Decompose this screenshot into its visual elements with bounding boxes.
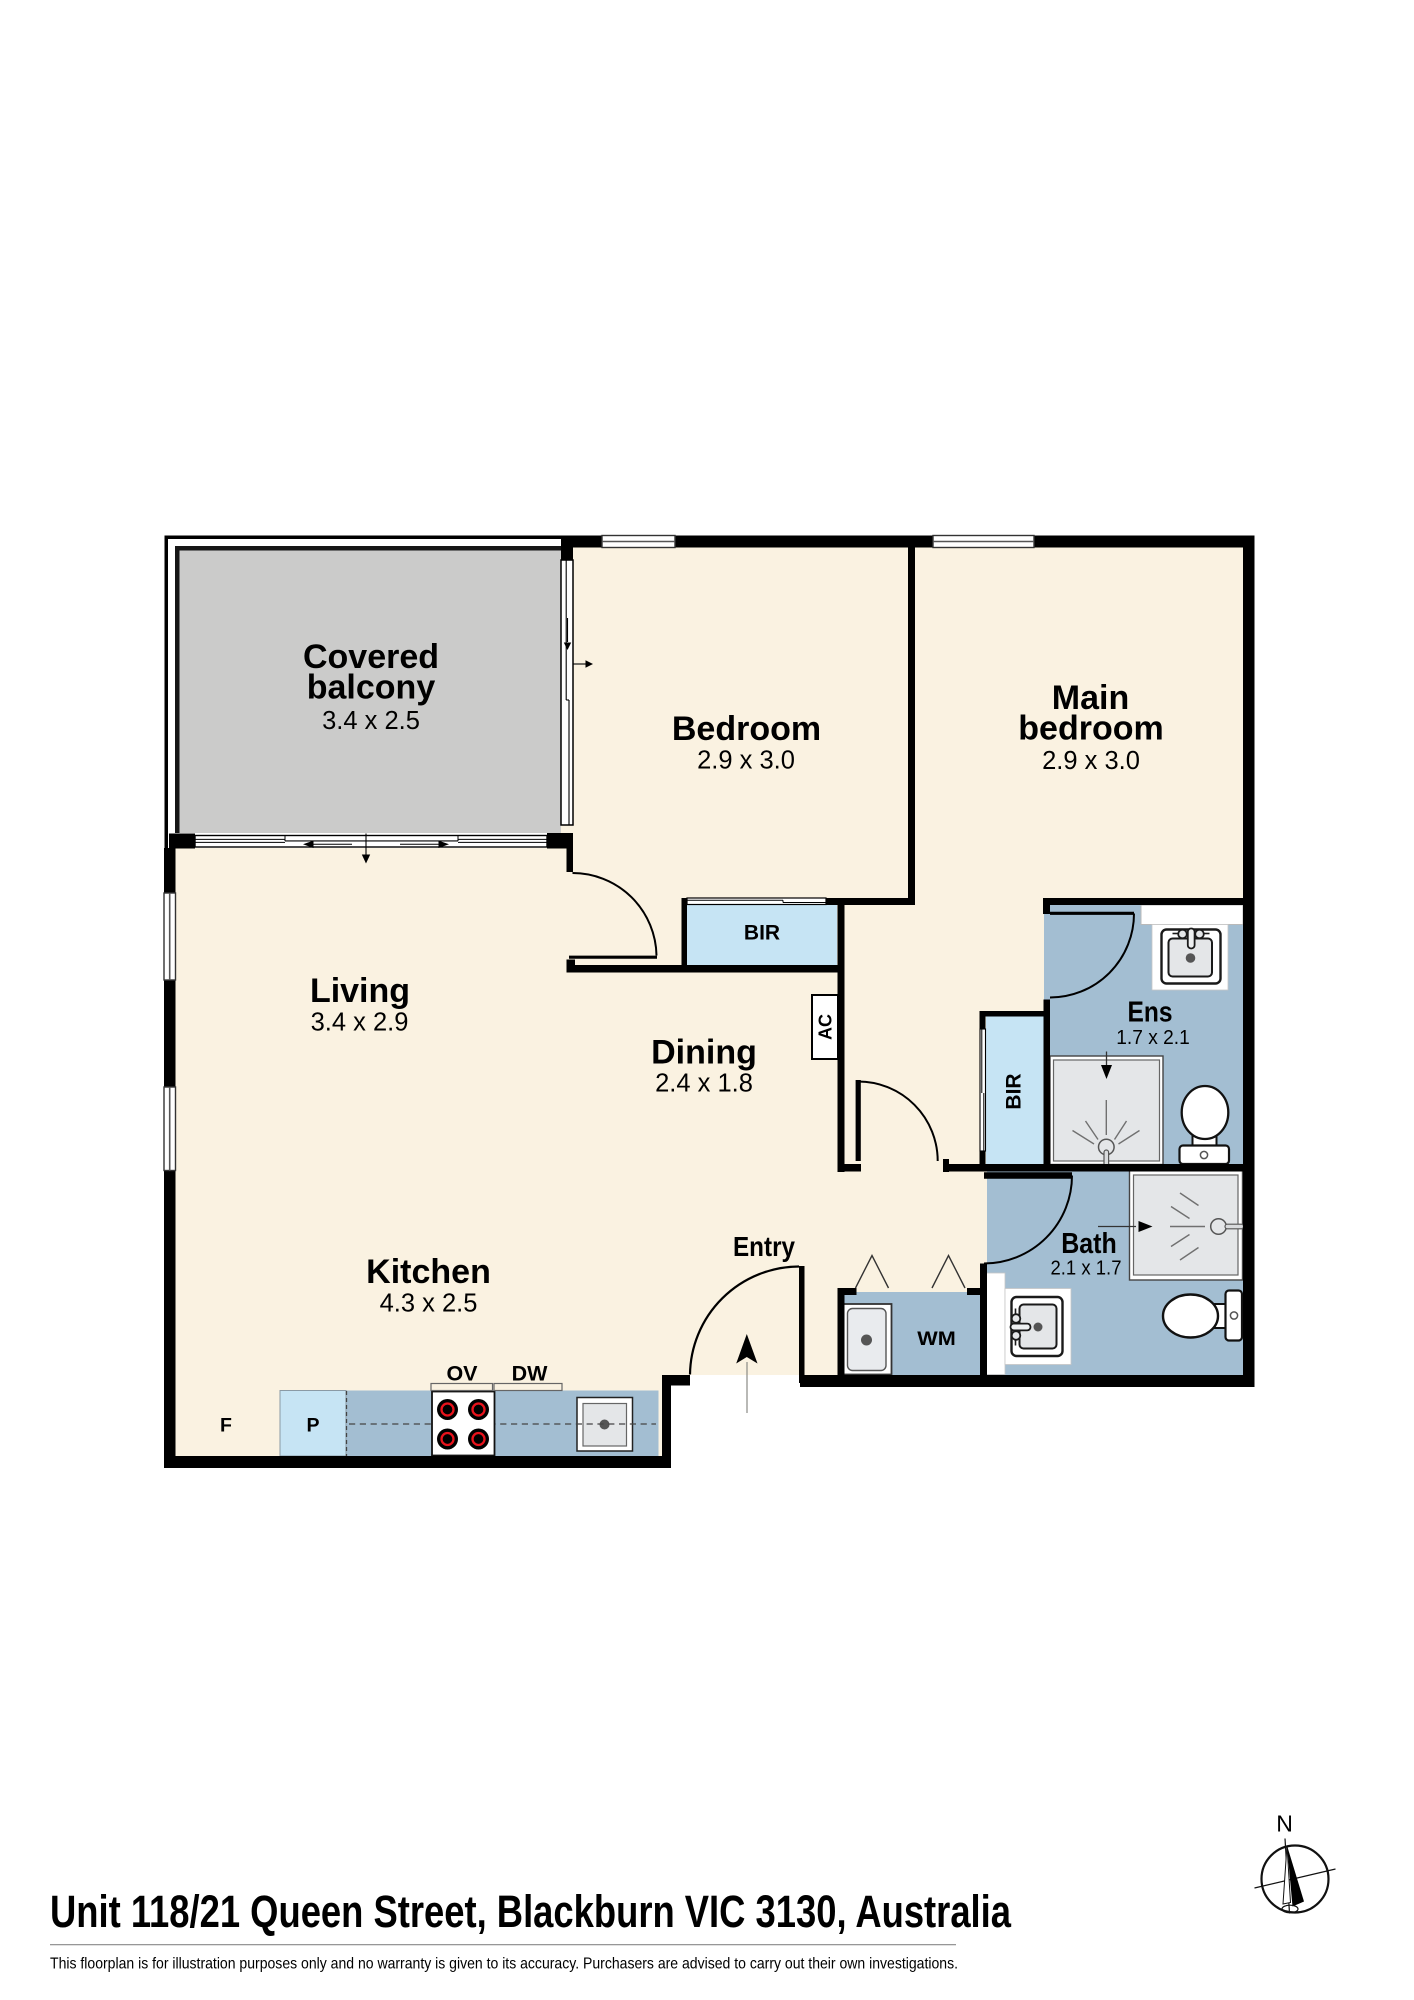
svg-text:Ens: Ens <box>1128 997 1173 1029</box>
svg-text:balcony: balcony <box>307 669 436 707</box>
svg-text:1.7 x 2.1: 1.7 x 2.1 <box>1116 1026 1190 1049</box>
svg-text:2.4 x 1.8: 2.4 x 1.8 <box>655 1070 753 1098</box>
svg-text:4.3 x 2.5: 4.3 x 2.5 <box>380 1290 478 1318</box>
svg-text:3.4 x 2.9: 3.4 x 2.9 <box>311 1009 409 1037</box>
svg-text:3.4 x 2.5: 3.4 x 2.5 <box>322 707 420 735</box>
svg-text:2.9 x 3.0: 2.9 x 3.0 <box>1042 747 1140 775</box>
svg-text:Kitchen: Kitchen <box>366 1253 491 1291</box>
svg-text:2.9 x 3.0: 2.9 x 3.0 <box>697 747 795 775</box>
svg-text:This floorplan is for illustra: This floorplan is for illustration purpo… <box>50 1956 958 1973</box>
svg-text:Living: Living <box>310 972 410 1010</box>
svg-text:Bath: Bath <box>1061 1228 1117 1260</box>
svg-text:N: N <box>1276 1811 1293 1837</box>
svg-text:Unit 118/21 Queen Street, Blac: Unit 118/21 Queen Street, Blackburn VIC … <box>50 1886 1012 1937</box>
svg-text:DW: DW <box>512 1362 549 1386</box>
svg-text:Dining: Dining <box>651 1034 757 1072</box>
svg-text:OV: OV <box>446 1362 478 1386</box>
svg-text:2.1 x 1.7: 2.1 x 1.7 <box>1051 1257 1122 1280</box>
svg-text:Bedroom: Bedroom <box>672 710 821 748</box>
svg-text:P: P <box>306 1415 319 1437</box>
svg-text:BIR: BIR <box>744 922 780 945</box>
svg-text:Entry: Entry <box>733 1231 796 1262</box>
svg-text:bedroom: bedroom <box>1018 710 1163 748</box>
svg-text:WM: WM <box>917 1328 956 1350</box>
svg-text:BIR: BIR <box>1003 1073 1026 1109</box>
svg-text:F: F <box>220 1415 232 1437</box>
svg-text:AC: AC <box>816 1014 836 1040</box>
